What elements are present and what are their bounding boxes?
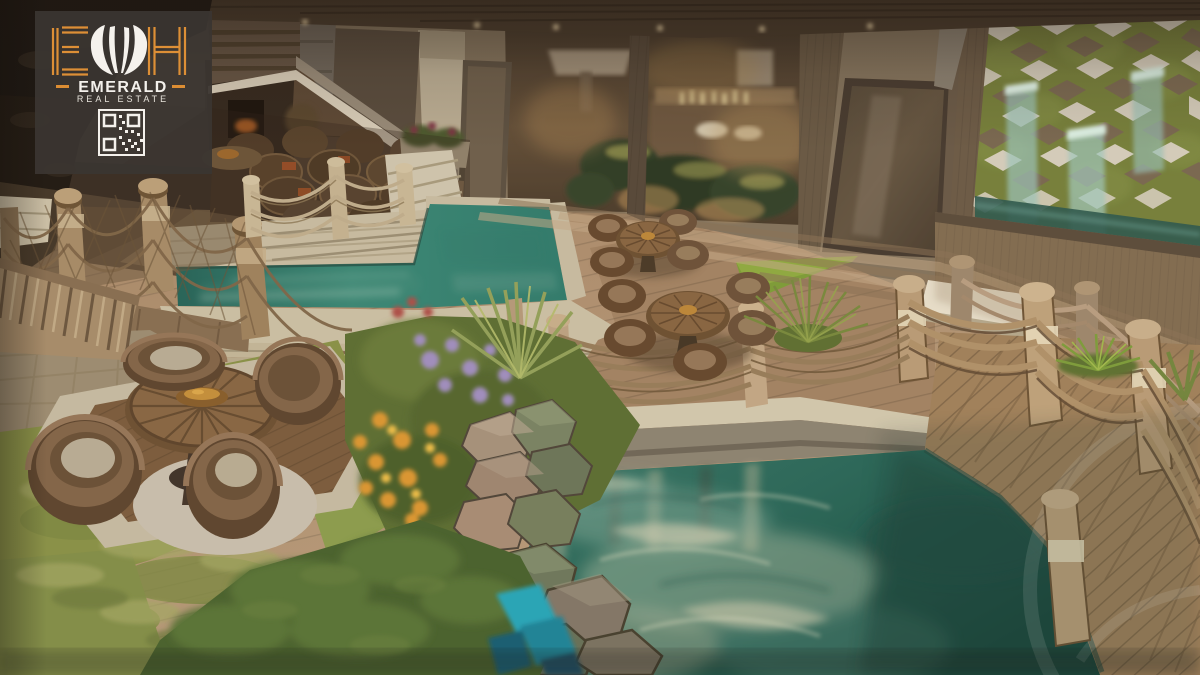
- svg-text:REAL ESTATE: REAL ESTATE: [77, 94, 169, 104]
